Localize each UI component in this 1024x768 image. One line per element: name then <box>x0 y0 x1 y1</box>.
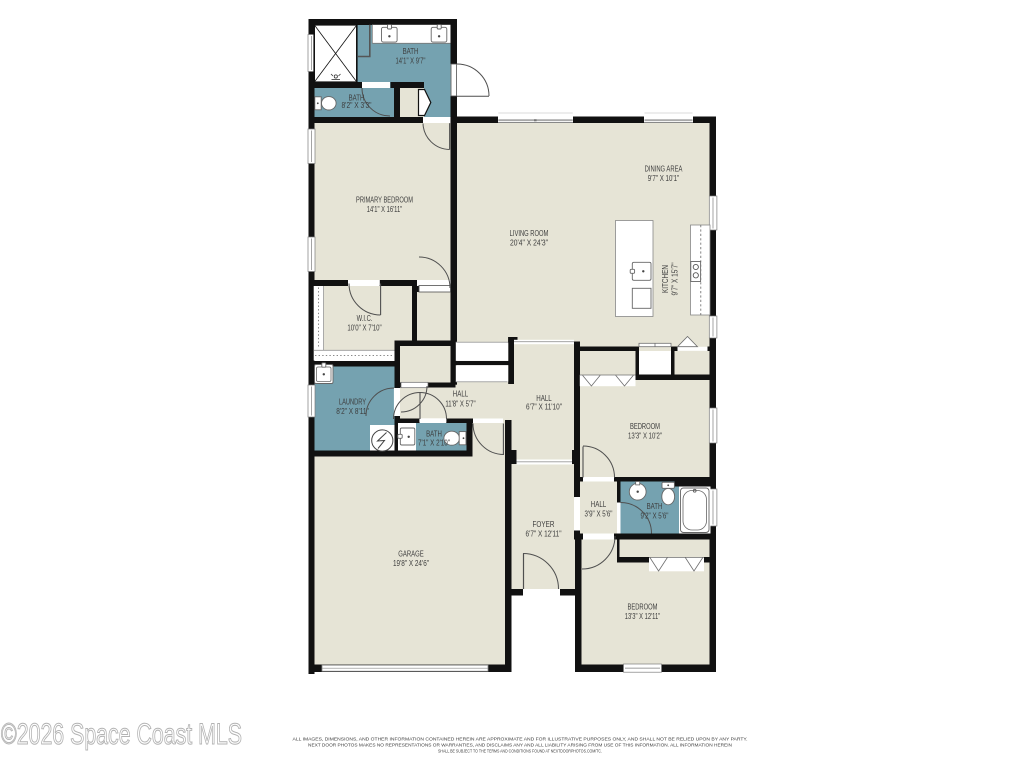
svg-text:20'4" X 24'3": 20'4" X 24'3" <box>510 239 548 248</box>
svg-text:9'7" X 15'7": 9'7" X 15'7" <box>671 262 680 295</box>
svg-text:6'7" X 12'11": 6'7" X 12'11" <box>526 530 562 539</box>
svg-text:13'3" X 12'11": 13'3" X 12'11" <box>625 612 661 621</box>
svg-text:FOYER: FOYER <box>533 520 555 529</box>
svg-text:BEDROOM: BEDROOM <box>630 422 660 431</box>
svg-text:13'3" X 10'2": 13'3" X 10'2" <box>628 432 662 441</box>
svg-text:DINING AREA: DINING AREA <box>645 165 683 174</box>
svg-text:SHALL BE SUBJECT TO THE TERMS: SHALL BE SUBJECT TO THE TERMS AND CONDIT… <box>438 749 602 754</box>
svg-text:W.I.C.: W.I.C. <box>357 314 373 323</box>
svg-text:7'1" X 2'10": 7'1" X 2'10" <box>418 439 450 448</box>
svg-text:©2026 Space Coast MLS: ©2026 Space Coast MLS <box>1 718 242 751</box>
svg-text:8'2" X 8'11": 8'2" X 8'11" <box>336 407 369 416</box>
svg-text:LIVING ROOM: LIVING ROOM <box>510 229 549 238</box>
svg-text:8'2" X 3'3": 8'2" X 3'3" <box>342 101 372 110</box>
svg-text:PRIMARY BEDROOM: PRIMARY BEDROOM <box>356 196 413 205</box>
svg-text:ALL IMAGES, DIMENSIONS, AND OT: ALL IMAGES, DIMENSIONS, AND OTHER INFORM… <box>293 737 748 742</box>
svg-text:14'1" X 9'7": 14'1" X 9'7" <box>396 57 426 66</box>
svg-text:HALL: HALL <box>591 500 607 509</box>
svg-text:9'7" X 10'1": 9'7" X 10'1" <box>648 174 680 183</box>
svg-text:LAUNDRY: LAUNDRY <box>339 398 367 407</box>
svg-text:9'2" X 5'6": 9'2" X 5'6" <box>641 512 669 521</box>
svg-text:KITCHEN: KITCHEN <box>661 265 670 293</box>
svg-text:11'8" X 5'7": 11'8" X 5'7" <box>445 400 475 409</box>
svg-text:HALL: HALL <box>453 390 469 399</box>
svg-text:14'1" X 16'11": 14'1" X 16'11" <box>367 205 403 214</box>
svg-text:GARAGE: GARAGE <box>398 550 424 559</box>
svg-text:10'0" X 7'10": 10'0" X 7'10" <box>347 324 381 333</box>
svg-text:NEXT DOOR PHOTOS MAKES NO REPR: NEXT DOOR PHOTOS MAKES NO REPRESENTATION… <box>308 743 732 748</box>
svg-text:6'7" X 11'10": 6'7" X 11'10" <box>526 403 562 412</box>
svg-text:19'8" X 24'6": 19'8" X 24'6" <box>393 559 429 568</box>
svg-text:BATH: BATH <box>647 502 663 511</box>
svg-text:BATH: BATH <box>426 430 442 439</box>
svg-text:3'9" X 5'6": 3'9" X 5'6" <box>585 510 613 519</box>
svg-text:BEDROOM: BEDROOM <box>628 603 658 612</box>
svg-text:BATH: BATH <box>403 47 419 56</box>
